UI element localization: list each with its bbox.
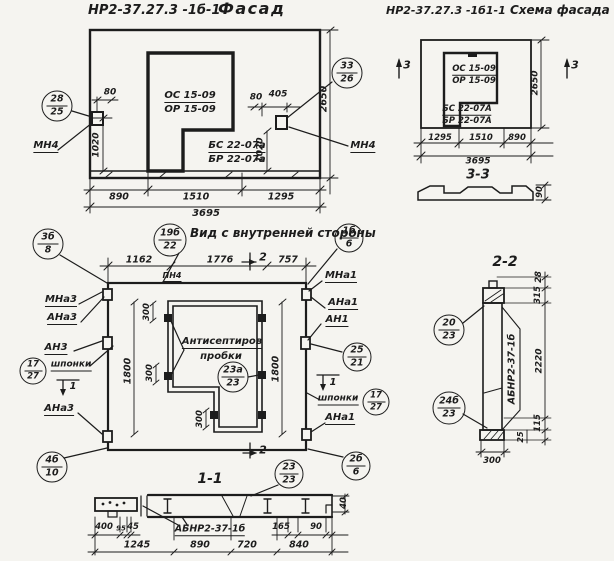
section-1-mark-left: 1: [70, 382, 77, 392]
section-2-2-dim-315: 315: [534, 286, 543, 304]
facade-anchor-label-right: МН4: [350, 141, 375, 153]
scheme-dim-total: 3695: [465, 158, 490, 167]
section-2-2-dim-25: 25: [517, 431, 525, 442]
callout-num: 24б: [437, 397, 461, 409]
section-2-2-dim-115: 115: [534, 414, 543, 432]
inner-note-line2: пробки: [200, 352, 242, 362]
section-1-1-dim-45: 45: [127, 523, 139, 532]
facade-dim-2650: 2650: [319, 86, 329, 112]
section-1-1-callout: 23 23: [275, 460, 304, 489]
inner-right-callout-mid: 25 21: [343, 343, 372, 372]
facade-dim-890: 890: [109, 192, 129, 202]
facade-dim-1020-left: 1020: [93, 132, 102, 157]
facade-dim-80-right: 80: [250, 94, 263, 103]
callout-sheet: 26: [340, 74, 353, 85]
inner-right-callout-bottom: 2б 6: [342, 452, 371, 481]
inner-left-callout-bottom: 4б 10: [37, 452, 68, 483]
section-1-1-dim-720: 720: [237, 540, 257, 550]
facade-linework: [58, 27, 348, 213]
inner-dim-1800-left: 1800: [123, 358, 133, 384]
section-2-mark-top: 2: [259, 252, 267, 263]
callout-sheet: 23: [442, 331, 455, 342]
inner-dim-757: 757: [278, 255, 298, 265]
facade-dim-80-left: 80: [104, 89, 117, 98]
section-1-1-dim-840: 840: [289, 540, 309, 550]
scheme-window-mark-top: ОС 15-09: [452, 65, 496, 76]
scheme-section-mark-right: 3: [571, 60, 579, 71]
facade-dim-total: 3695: [192, 209, 220, 219]
callout-num: 4б: [42, 456, 63, 468]
inner-left-callout-shponki: 17 27: [20, 358, 47, 385]
callout-num: 28: [47, 95, 68, 107]
facade-dim-1020-right: 1020: [257, 137, 266, 162]
inner-left-callout-top: 3б 8: [33, 229, 64, 260]
inner-plugs-callout: 23а 23: [218, 362, 249, 393]
section-2-2-dim-28: 28: [535, 271, 544, 283]
inner-label-ana1: АНа1: [328, 298, 358, 310]
section-2-2-title: 2-2: [492, 255, 517, 269]
inner-dim-300-a: 300: [143, 303, 152, 321]
callout-num: 3б: [38, 233, 59, 245]
facade-window-mark-bottom: ОР 15-09: [164, 105, 215, 115]
callout-sheet: 23: [226, 378, 239, 389]
facade-anchor-label-left: МН4: [33, 141, 58, 153]
scheme-dim-2650: 2650: [532, 70, 541, 95]
facade-title: Фасад: [218, 1, 285, 17]
inner-label-shponki-left: шпонки: [51, 361, 92, 372]
inner-label-ana1-b: АНа1: [325, 413, 355, 425]
callout-sheet: 21: [350, 358, 363, 369]
facade-dim-1510: 1510: [183, 192, 209, 202]
drawing-sheet: НР2-37.27.3 -1б-1 Фасад ОС 15-09 ОР 15-0…: [0, 0, 614, 561]
inner-label-mna1: МНа1: [325, 271, 357, 283]
scheme-title-code: НР2-37.27.3 -1б1-1: [386, 5, 506, 16]
inner-right-callout-shponki: 17 27: [363, 389, 390, 416]
section-2-2-callout-bottom: 24б 23: [433, 392, 466, 425]
scheme-panel-mark-bottom: БР 22-07А: [442, 117, 491, 126]
callout-sheet: 22: [163, 241, 176, 252]
scheme-window-mark-bottom: ОР 15-09: [452, 77, 496, 86]
scheme-section-title: 3-3: [466, 169, 490, 182]
inner-label-ana3: АНа3: [47, 313, 77, 325]
facade-callout-left: 28 25: [42, 91, 73, 122]
section-2-2-dim-2220: 2220: [536, 348, 545, 373]
scheme-dim-1295: 1295: [428, 134, 452, 143]
section-2-2-panel-label: АБНР2-37-1б: [507, 334, 517, 404]
callout-sheet: 27: [27, 372, 39, 382]
section-1-1-dim-890: 890: [190, 540, 210, 550]
inner-title-callout: 19б 22: [154, 224, 187, 257]
callout-sheet: 23: [282, 475, 295, 486]
section-1-1-title: 1-1: [197, 472, 222, 486]
section-1-1-panel-label: АБНР2-37-1б: [175, 524, 245, 536]
section-1-1-dim-165: 165: [272, 523, 290, 532]
section-1-1-dim-90: 90: [310, 523, 322, 532]
inner-label-ana3-b: АНа3: [44, 404, 74, 416]
scheme-dim-890: 890: [508, 134, 526, 143]
scheme-panel-mark-top: БС 22-07А: [442, 105, 491, 116]
callout-num: 20: [439, 319, 460, 331]
inner-label-mna3: МНа3: [45, 295, 77, 307]
callout-sheet: 6: [346, 239, 353, 250]
callout-num: 19б: [158, 229, 182, 241]
section-1-1-dim-400: 400: [95, 523, 113, 532]
inner-dim-1776: 1776: [207, 255, 233, 265]
callout-sheet: 8: [45, 245, 52, 256]
inner-label-pn4: ПН4: [163, 272, 182, 282]
facade-callout-right: 33 26: [332, 58, 363, 89]
inner-dim-300-c: 300: [196, 410, 205, 428]
callout-sheet: 10: [45, 468, 58, 479]
callout-sheet: 27: [370, 403, 382, 413]
scheme-section-mark-left: 3: [403, 60, 411, 71]
section-2-2-callout-top: 20 23: [434, 315, 465, 346]
callout-num: 25: [347, 346, 366, 358]
facade-title-code: НР2-37.27.3 -1б-1: [88, 4, 220, 17]
callout-num: 23: [279, 463, 298, 475]
drawing-linework: [0, 0, 614, 561]
callout-num: 33: [337, 62, 358, 74]
facade-dim-1295: 1295: [268, 192, 294, 202]
section-2-2-dim-300: 300: [483, 457, 501, 466]
inner-right-callout-top: 1б 6: [335, 224, 364, 253]
callout-sheet: 23: [442, 409, 455, 420]
callout-num: 17: [24, 361, 42, 372]
inner-note-line1: Антисептиров: [182, 337, 262, 349]
callout-num: 17: [367, 392, 385, 403]
facade-window-mark-top: ОС 15-09: [164, 91, 215, 103]
callout-sheet: 6: [353, 467, 360, 478]
callout-num: 2б: [346, 455, 365, 467]
section-1-1-dim-1245: 1245: [124, 540, 150, 550]
scheme-dim-1510: 1510: [469, 134, 493, 143]
section-1-1-dim-40: 40: [340, 497, 349, 509]
scheme-title: Схема фасада: [510, 4, 610, 16]
scheme-dim-90: 90: [536, 186, 545, 198]
inner-label-an3: АН3: [44, 343, 67, 355]
inner-label-shponki-right: шпонки: [318, 395, 359, 406]
inner-label-an1: АН1: [325, 315, 348, 327]
section-1-1-dim-95: 95: [116, 526, 126, 533]
callout-num: 23а: [221, 366, 245, 378]
section-2-mark-bottom: 2: [259, 445, 267, 456]
facade-dim-405: 405: [269, 91, 288, 100]
inner-dim-300-b: 300: [146, 364, 155, 382]
inner-dim-1162: 1162: [126, 255, 152, 265]
callout-num: 1б: [339, 227, 358, 239]
callout-sheet: 25: [50, 107, 63, 118]
inner-dim-1800-right: 1800: [271, 356, 281, 382]
section-1-mark-right: 1: [330, 378, 337, 388]
